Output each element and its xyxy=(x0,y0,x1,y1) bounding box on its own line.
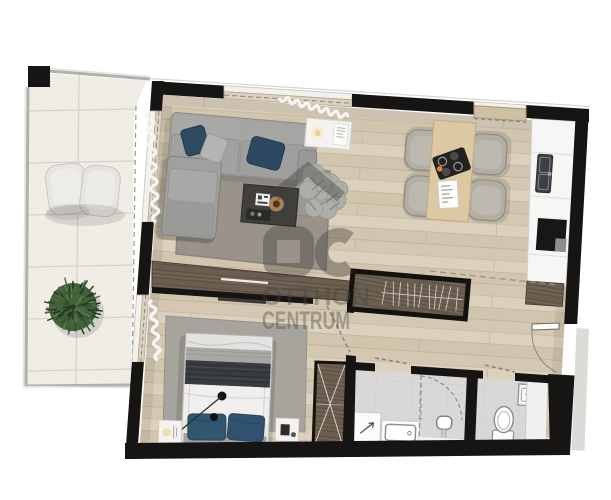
svg-text:CENTRUM: CENTRUM xyxy=(262,307,350,335)
